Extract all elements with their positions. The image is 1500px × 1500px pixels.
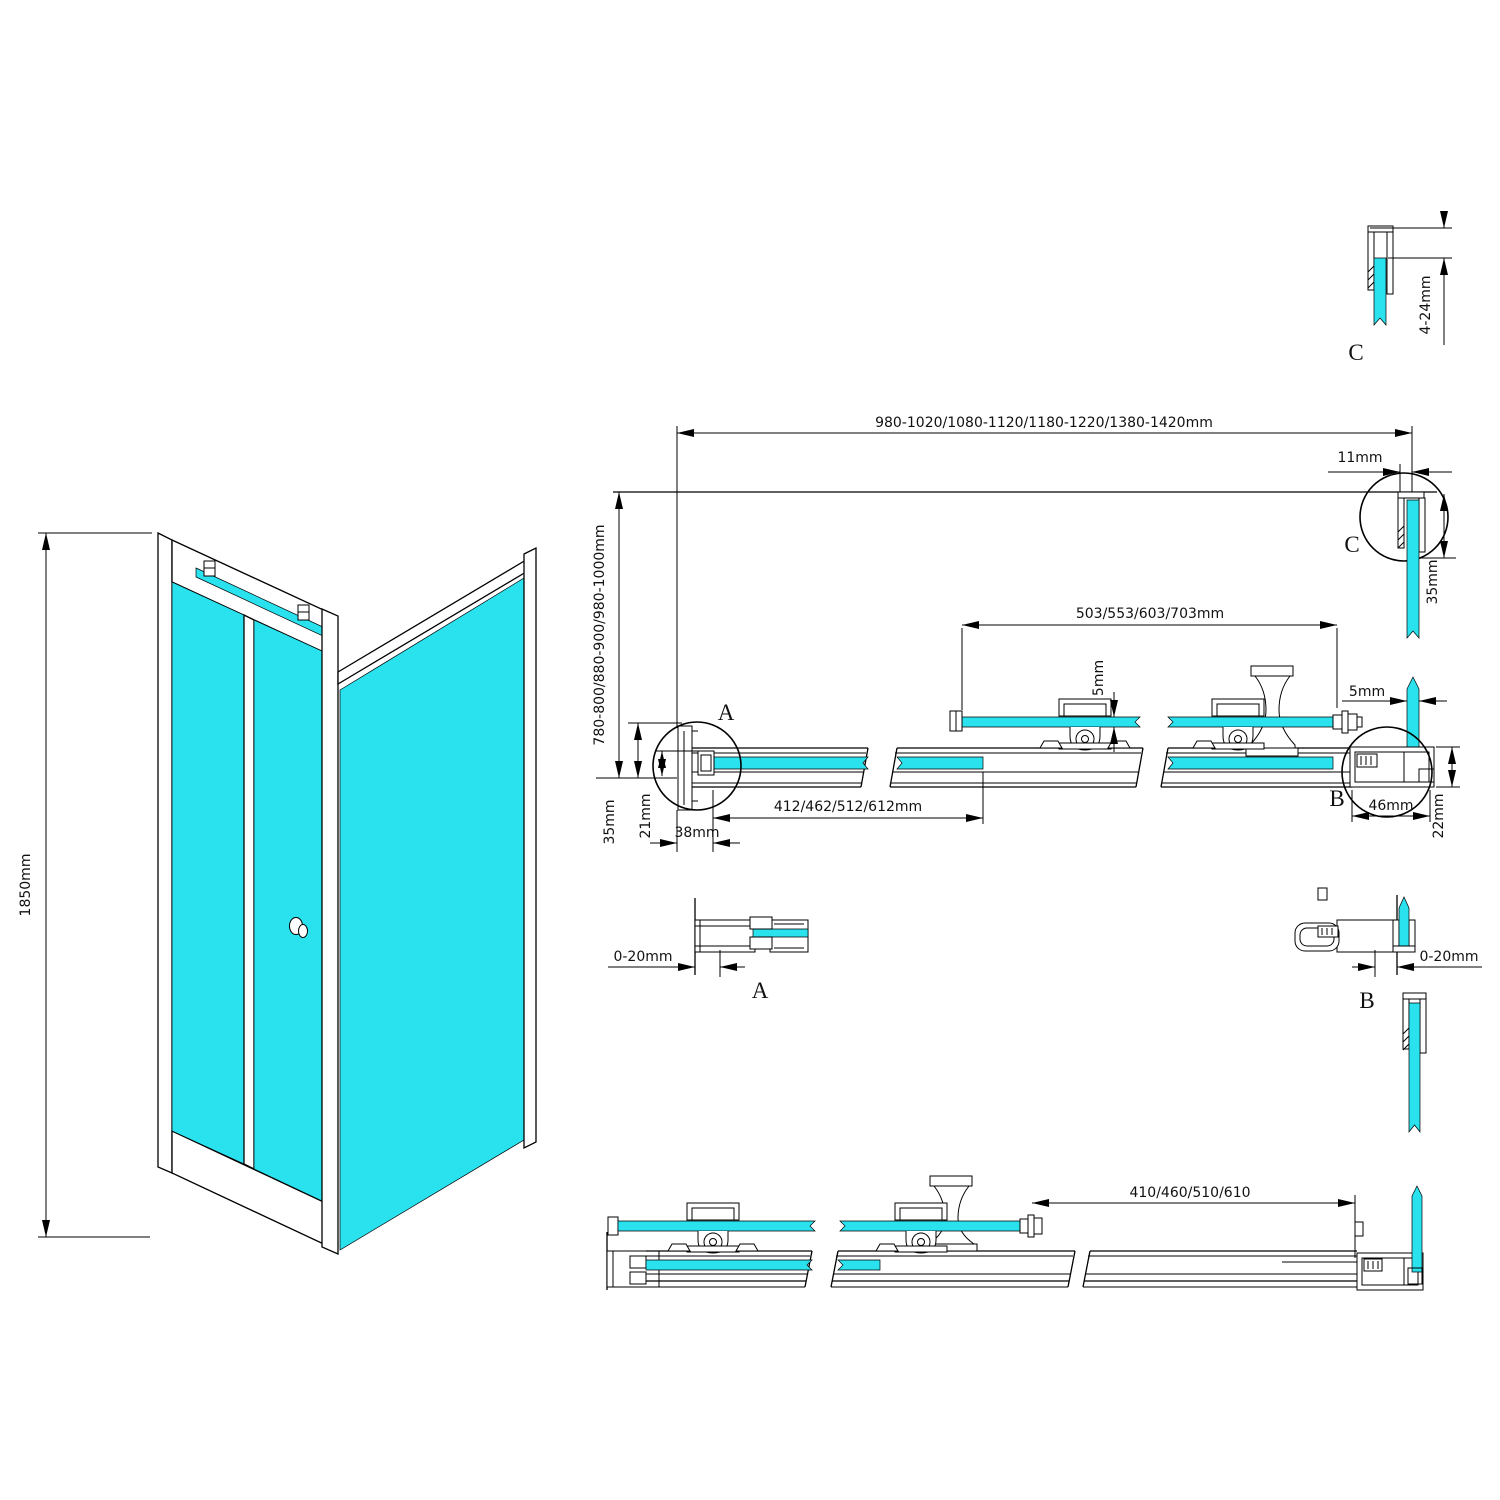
- front-fixed-glass-panel: [172, 582, 244, 1164]
- plan-corner-width-label: 46mm: [1368, 798, 1413, 814]
- bottom-side-glass: [1412, 1186, 1422, 1272]
- plan-door-glass-thickness-label: 5mm: [1091, 660, 1107, 696]
- detail-c-section: 4-24mm C: [1348, 212, 1452, 365]
- shower-enclosure-drawing: 1850mm: [0, 0, 1500, 1500]
- fixed-glass-plan: [1168, 757, 1333, 769]
- plan-profile-depth-label: 35mm: [602, 799, 618, 844]
- plan-detail-a-label: A: [718, 700, 735, 725]
- section-a-glass: [753, 929, 808, 937]
- plan-top-gap-label: 11mm: [1337, 450, 1382, 466]
- door-glass-plan: [1168, 717, 1333, 727]
- c-glass-section: [1374, 258, 1386, 325]
- section-b-glass: [1399, 897, 1409, 948]
- section-b-adjust-label: 0-20mm: [1419, 949, 1478, 965]
- side-end-post: [524, 548, 536, 1148]
- c-channel-left-wall: [1368, 232, 1374, 290]
- section-a-adjust-label: 0-20mm: [613, 949, 672, 965]
- plan-corner-height-label: 22mm: [1431, 793, 1447, 838]
- bottom-door-glass: [618, 1221, 815, 1231]
- plan-side-channel-label: 35mm: [1425, 559, 1441, 604]
- plan-glass-inset-label: 21mm: [638, 793, 654, 838]
- plan-view: 980-1020/1080-1120/1180-1220/1380-1420mm…: [592, 415, 1460, 852]
- bottom-track-segment: [1083, 1251, 1357, 1287]
- side-glass-panel: [340, 578, 524, 1250]
- detail-c-label: C: [1348, 340, 1363, 365]
- detail-c-adjust-label: 4-24mm: [1418, 275, 1434, 334]
- bottom-fixed-glass: [838, 1260, 880, 1270]
- fixed-glass-plan: [897, 757, 983, 769]
- iso-height-dimension: 1850mm: [18, 533, 152, 1237]
- corner-profile-b: [1350, 747, 1434, 787]
- side-glass-channel-strip: [1403, 993, 1426, 1132]
- c-channel-right-wall: [1387, 232, 1393, 294]
- section-b-label: B: [1359, 988, 1374, 1013]
- iso-view: 1850mm: [18, 533, 536, 1254]
- bottom-fixed-glass: [646, 1260, 812, 1270]
- plan-door-glass-span-label: 503/553/603/703mm: [1076, 606, 1224, 622]
- c-channel-cap: [1368, 226, 1393, 232]
- bottom-track-tab: [1355, 1222, 1363, 1236]
- side-channel-right-wall: [1419, 498, 1425, 552]
- bottom-corner-profile: [1282, 1253, 1423, 1290]
- section-detail-b: 0-20mm B: [1295, 888, 1482, 1013]
- front-sliding-glass-panel: [254, 620, 322, 1201]
- front-left-wall-profile: [158, 533, 172, 1173]
- wall-profile-a: [678, 726, 714, 810]
- corner-post: [322, 609, 338, 1254]
- bottom-section-view: 410/460/510/610: [607, 1176, 1423, 1290]
- front-mullion: [244, 615, 254, 1169]
- plan-side-glass-thickness-label: 5mm: [1349, 684, 1385, 700]
- bottom-end-bolt-icon: [1020, 1215, 1042, 1237]
- plan-depth-label: 780-800/880-900/980-1000mm: [592, 524, 608, 745]
- bottom-door-glass: [840, 1221, 1020, 1231]
- door-end-bolt-icon: [1333, 711, 1362, 733]
- iso-height-label: 1850mm: [18, 854, 34, 917]
- side-glass-strip: [1409, 1003, 1420, 1132]
- plan-overall-width-label: 980-1020/1080-1120/1180-1220/1380-1420mm: [875, 415, 1213, 431]
- plan-fixed-glass-span-label: 412/462/512/612mm: [774, 799, 922, 815]
- technical-drawing-page: 1850mm: [0, 0, 1500, 1500]
- plan-wall-offset-label: 38mm: [674, 825, 719, 841]
- bottom-door-end-cap: [608, 1217, 618, 1235]
- section-a-label: A: [752, 978, 769, 1003]
- fixed-glass-plan: [712, 757, 868, 769]
- door-glass-plan: [962, 717, 1140, 727]
- plan-detail-c-label: C: [1344, 532, 1359, 557]
- side-channel-left-wall: [1398, 498, 1404, 548]
- bottom-span-label: 410/460/510/610: [1129, 1185, 1250, 1201]
- plan-detail-b-label: B: [1329, 786, 1344, 811]
- side-channel-cap: [1398, 492, 1424, 498]
- side-glass-plan-upper: [1407, 500, 1419, 638]
- section-detail-a: 0-20mm A: [608, 898, 808, 1003]
